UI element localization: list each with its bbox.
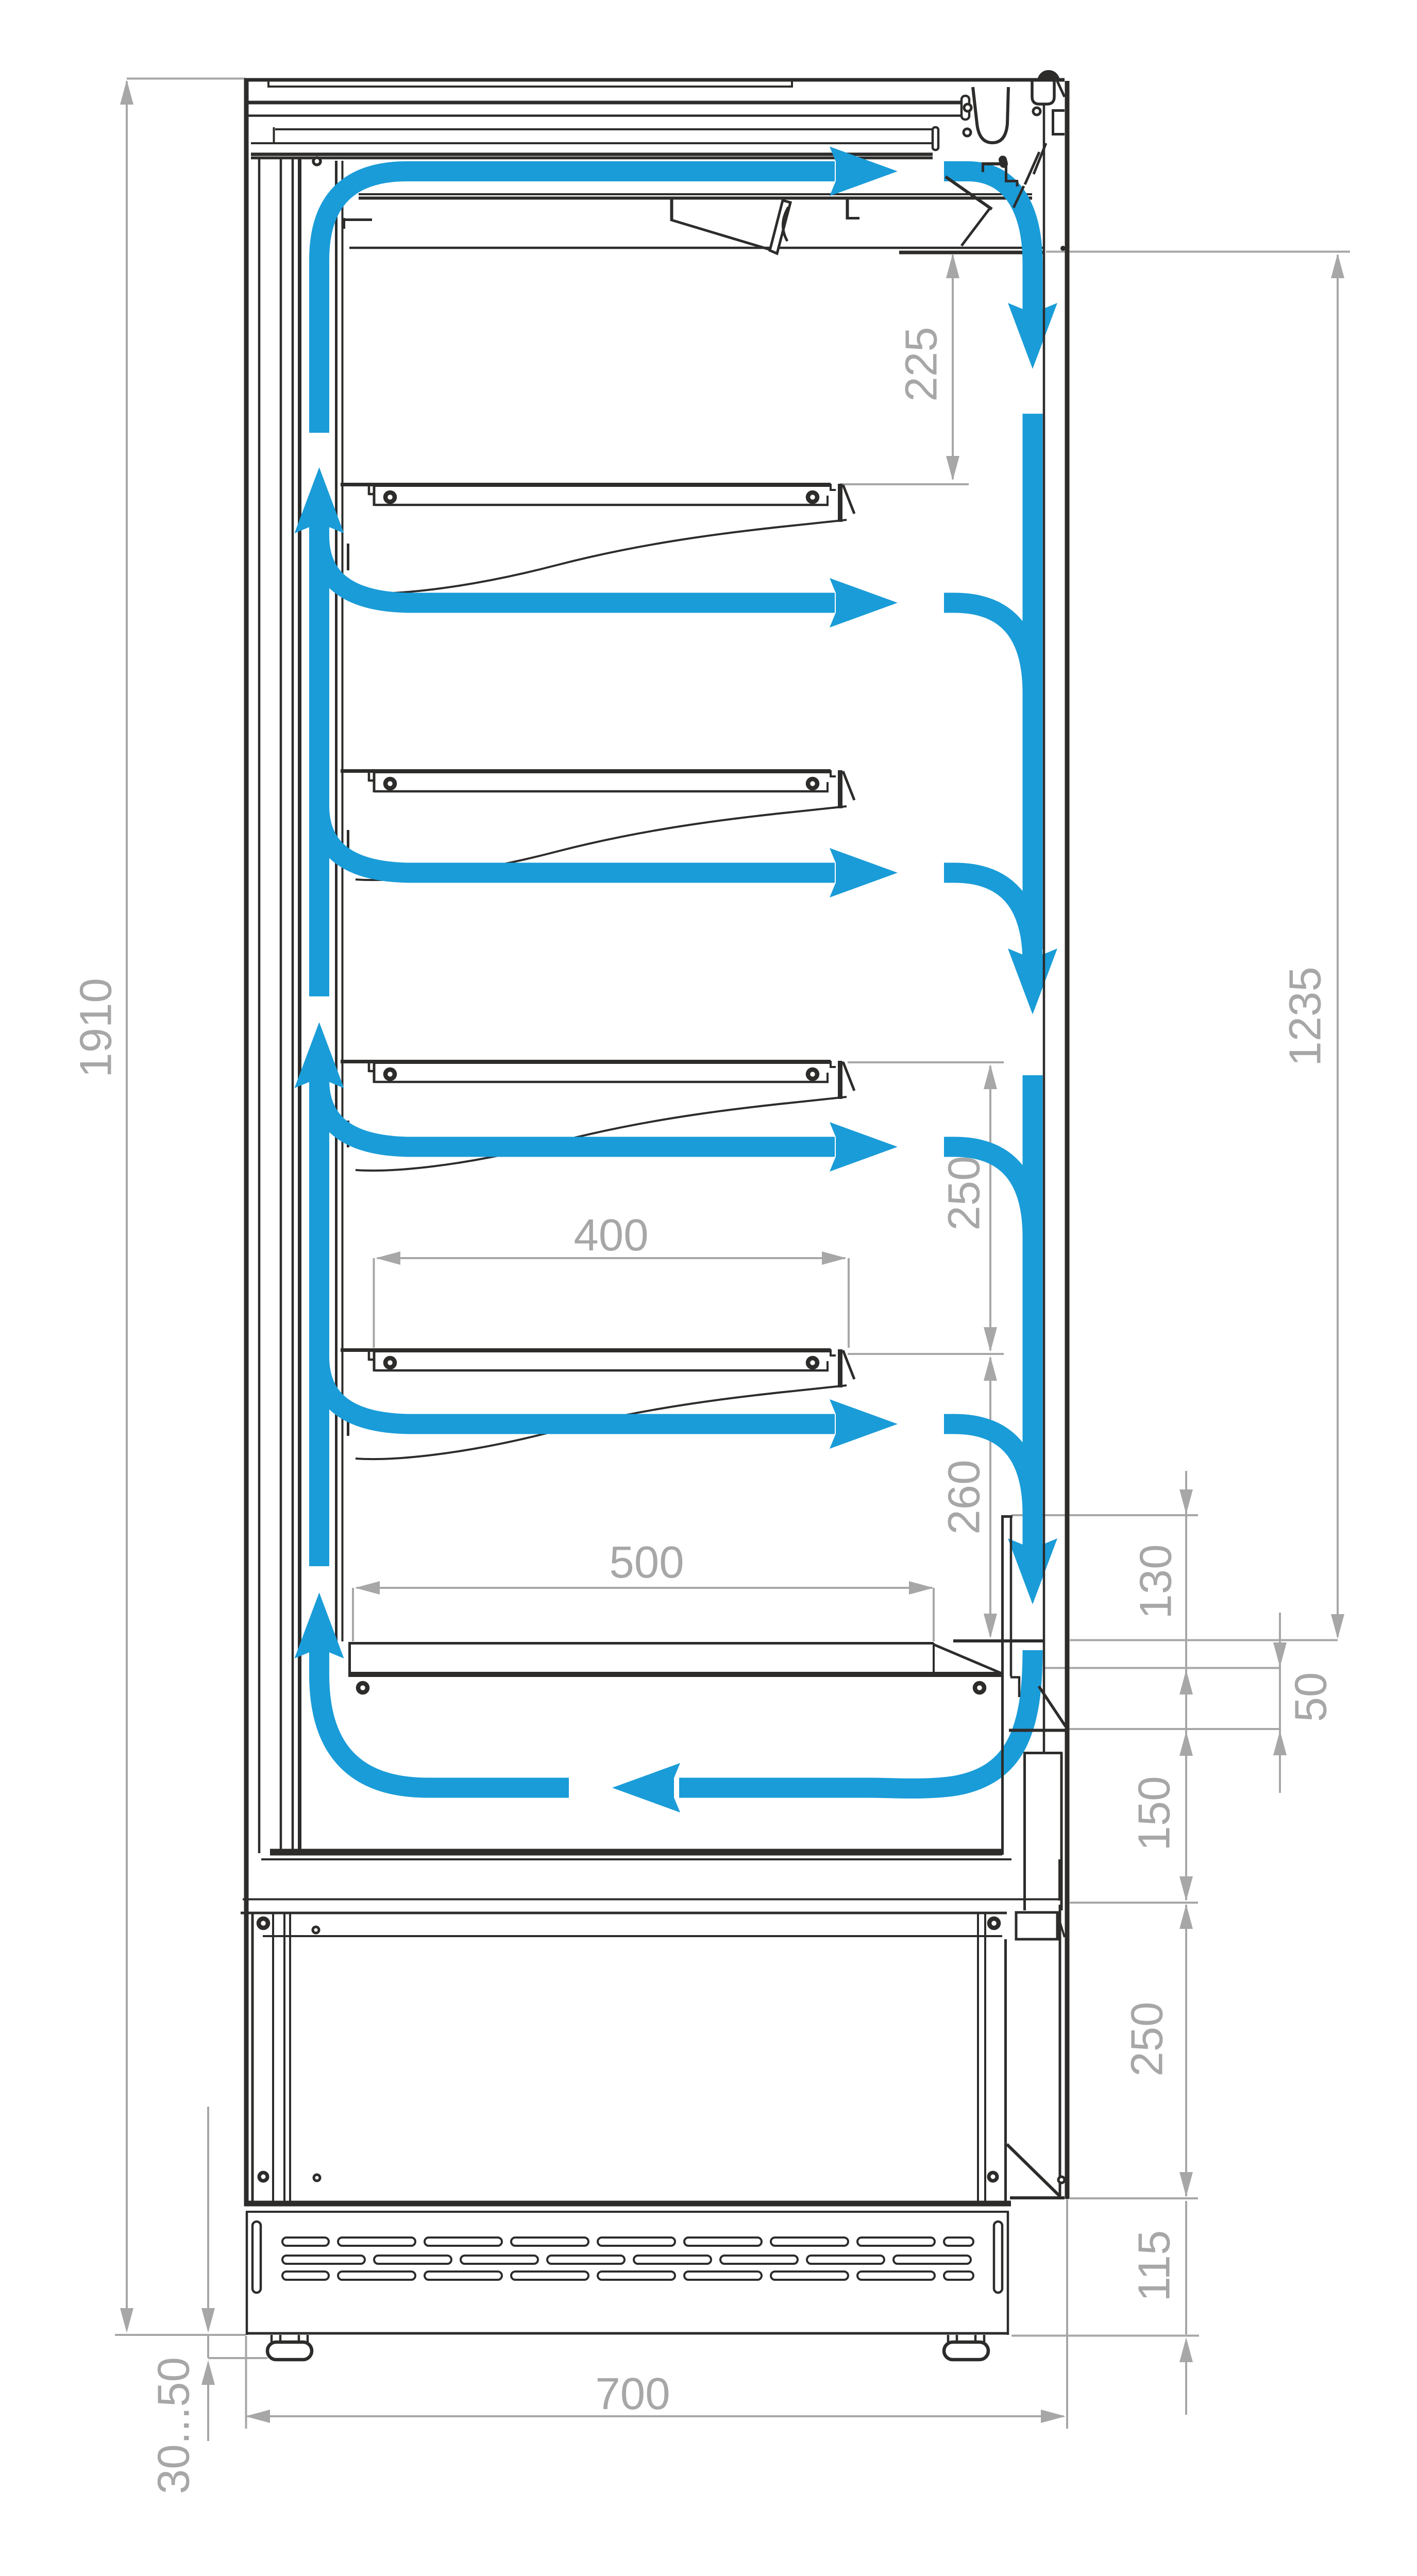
svg-text:150: 150 — [1129, 1776, 1179, 1851]
svg-text:130: 130 — [1131, 1544, 1181, 1619]
svg-text:500: 500 — [609, 1537, 684, 1587]
svg-text:260: 260 — [939, 1460, 989, 1534]
svg-text:115: 115 — [1129, 2230, 1179, 2302]
svg-text:50: 50 — [1286, 1672, 1336, 1722]
svg-text:1235: 1235 — [1280, 967, 1330, 1066]
svg-text:250: 250 — [1122, 2002, 1172, 2076]
svg-text:250: 250 — [939, 1156, 989, 1230]
svg-text:1910: 1910 — [71, 978, 121, 1078]
svg-text:30...50: 30...50 — [149, 2357, 199, 2494]
svg-text:225: 225 — [897, 327, 947, 401]
svg-text:400: 400 — [573, 1210, 648, 1260]
svg-text:700: 700 — [595, 2369, 670, 2419]
